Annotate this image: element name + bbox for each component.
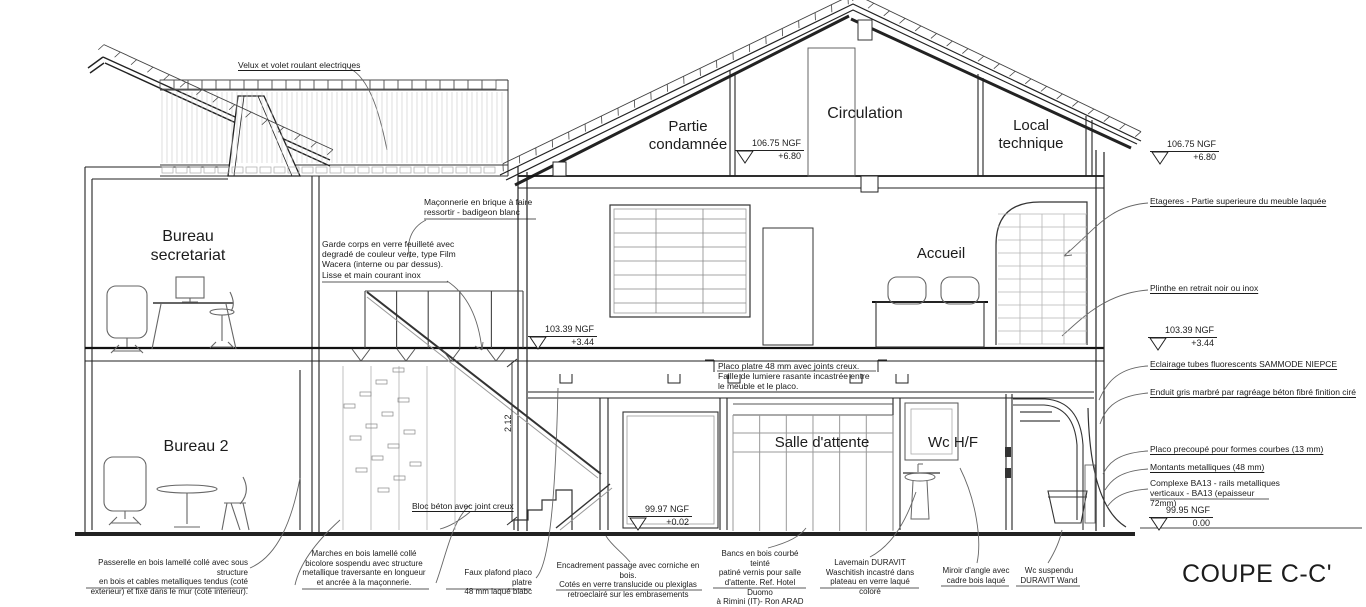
- main-roof-rafter: [515, 16, 1131, 185]
- ground-line: [75, 532, 1135, 536]
- reception-chair-1: [888, 277, 926, 304]
- level-value: 103.39 NGF: [528, 324, 597, 337]
- bureau-2-furniture: [104, 457, 249, 530]
- washbasin-bowl: [905, 473, 935, 481]
- annotation-plinthe: Plinthe en retrait noir ou inox: [1150, 283, 1258, 293]
- annotation-bancs: Bancs en bois courbé teinté patiné verni…: [712, 549, 808, 607]
- annotation-wc-suspendu: Wc suspendu DURAVIT Wand: [1016, 566, 1082, 585]
- annotation-eclairage: Eclairage tubes fluorescents SAMMODE NIE…: [1150, 359, 1337, 369]
- door: [763, 228, 813, 345]
- annotation-etageres: Etageres - Partie superieure du meuble l…: [1150, 196, 1326, 206]
- level-value: 106.75 NGF: [735, 138, 804, 151]
- level-offset: +3.44: [1148, 338, 1217, 350]
- hangers: [352, 349, 505, 361]
- room-label-circulation: Circulation: [795, 105, 935, 124]
- level-marker-attic-right: 106.75 NGF +6.80: [1150, 139, 1219, 163]
- annotation-lavemain: Lavemain DURAVIT Waschitish incastré dan…: [820, 558, 920, 597]
- ridge-beam: [858, 20, 872, 40]
- left-building-walls: [85, 167, 518, 532]
- level-marker-ground-right: 99.95 NGF 0.00: [1149, 505, 1213, 529]
- curved-bulkhead: [1013, 399, 1083, 530]
- level-value: 103.39 NGF: [1148, 325, 1217, 338]
- left-roof: [88, 57, 330, 166]
- level-marker-mid-right: 103.39 NGF +3.44: [1148, 325, 1217, 349]
- callout-placo-joints: Placo platre 48 mm avec joints creux. Fa…: [718, 361, 888, 392]
- level-offset: 0.00: [1149, 518, 1213, 530]
- section-drawing: Bureau secretariat Bureau 2 Partie conda…: [0, 0, 1366, 592]
- glass-band: [733, 404, 893, 415]
- annotation-complexe-ba13: Complexe BA13 - rails metalliques vertic…: [1150, 478, 1280, 509]
- level-offset: +3.44: [528, 337, 597, 349]
- level-marker-attic-center: 106.75 NGF +6.80: [735, 138, 804, 162]
- level-value: 99.97 NGF: [628, 504, 692, 517]
- curved-shelving: [996, 202, 1087, 345]
- annotation-enduit: Enduit gris marbré par ragréage béton fi…: [1150, 387, 1356, 397]
- dimension-text: 2.12: [503, 414, 513, 432]
- room-label-local-technique: Local technique: [971, 117, 1091, 152]
- annotation-marches: Marches en bois lamellé collé bicolore s…: [298, 549, 430, 588]
- level-triangles: [530, 151, 1168, 530]
- slab-post: [861, 176, 878, 192]
- room-label-salle-attente: Salle d'attente: [742, 434, 902, 452]
- annotation-faux-plafond: Faux plafond placo platre 48 mm laqué bl…: [444, 568, 532, 597]
- reception-desk: [876, 302, 984, 347]
- door-handle-1: [1005, 447, 1011, 457]
- callout-bloc-beton: Bloc béton avec joint creux: [412, 501, 514, 511]
- door-handle-2: [1005, 468, 1011, 478]
- guardrail: [365, 291, 523, 348]
- room-label-wc-hf: Wc H/F: [913, 434, 993, 452]
- annotation-passerelle: Passerelle en bois lamellé collé avec so…: [80, 558, 248, 597]
- annotation-montants: Montants metalliques (48 mm): [1150, 462, 1264, 472]
- room-label-accueil: Accueil: [891, 245, 991, 263]
- callout-garde-corps: Garde corps en verre feuilleté avec degr…: [322, 239, 462, 280]
- annotation-placo-precoupe: Placo precoupé pour formes courbes (13 m…: [1150, 444, 1323, 454]
- bureau-secretariat-furniture: [107, 277, 236, 353]
- level-marker-ground-center: 99.97 NGF +0.02: [628, 504, 692, 528]
- callout-maconnerie: Maçonnerie en brique à faire ressortir -…: [424, 197, 539, 217]
- stair-steps: [514, 490, 572, 530]
- level-offset: +6.80: [735, 151, 804, 163]
- slab-post-2: [553, 162, 566, 176]
- callout-velux: Velux et volet roulant electriques: [238, 60, 360, 70]
- ground-ceiling: [528, 392, 1094, 398]
- level-offset: +6.80: [1150, 152, 1219, 164]
- level-offset: +0.02: [628, 517, 692, 529]
- room-label-bureau-secretariat: Bureau secretariat: [118, 228, 258, 266]
- level-marker-mid-center: 103.39 NGF +3.44: [528, 324, 597, 348]
- reception-chair-2: [941, 277, 979, 304]
- shelf-lines: [1020, 412, 1060, 421]
- lower-flight-2: [560, 488, 612, 530]
- annotation-encadrement: Encadrement passage avec corniche en boi…: [552, 561, 704, 600]
- toilet: [1048, 491, 1087, 523]
- washbasin-pedestal: [911, 464, 929, 519]
- room-label-bureau-2: Bureau 2: [136, 438, 256, 457]
- level-value: 106.75 NGF: [1150, 139, 1219, 152]
- annotation-miroir: Miroir d'angle avec cadre bois laqué: [941, 566, 1011, 585]
- drawing-title: COUPE C-C': [1182, 560, 1332, 589]
